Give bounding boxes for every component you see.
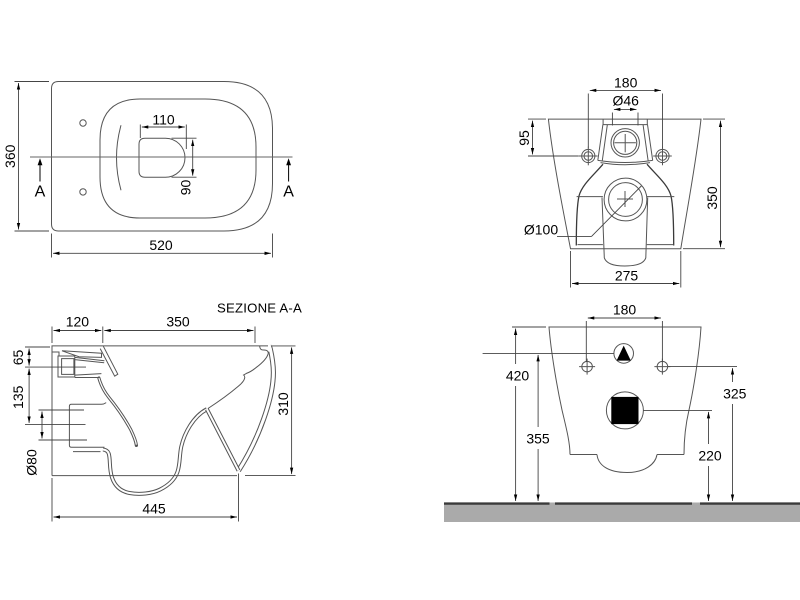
- svg-text:360: 360: [2, 144, 18, 168]
- svg-text:65: 65: [10, 350, 26, 366]
- svg-text:350: 350: [166, 314, 190, 330]
- svg-text:355: 355: [526, 430, 550, 446]
- svg-text:135: 135: [10, 385, 26, 409]
- svg-text:420: 420: [506, 367, 530, 383]
- svg-text:180: 180: [614, 75, 638, 91]
- svg-text:275: 275: [615, 267, 639, 283]
- svg-text:Ø80: Ø80: [24, 449, 40, 476]
- svg-text:445: 445: [142, 501, 166, 517]
- svg-text:Ø100: Ø100: [524, 222, 558, 238]
- svg-text:520: 520: [149, 237, 173, 253]
- svg-text:310: 310: [275, 392, 291, 416]
- svg-text:110: 110: [152, 111, 175, 127]
- svg-text:220: 220: [698, 447, 722, 463]
- svg-text:350: 350: [704, 186, 720, 210]
- svg-text:90: 90: [177, 180, 193, 196]
- svg-text:180: 180: [613, 302, 637, 318]
- svg-text:A: A: [283, 184, 294, 201]
- svg-text:A: A: [35, 184, 46, 201]
- svg-text:Ø46: Ø46: [612, 93, 639, 109]
- svg-text:325: 325: [723, 385, 747, 401]
- svg-text:120: 120: [66, 314, 90, 330]
- svg-text:95: 95: [516, 130, 532, 146]
- svg-text:SEZIONE A-A: SEZIONE A-A: [217, 301, 302, 316]
